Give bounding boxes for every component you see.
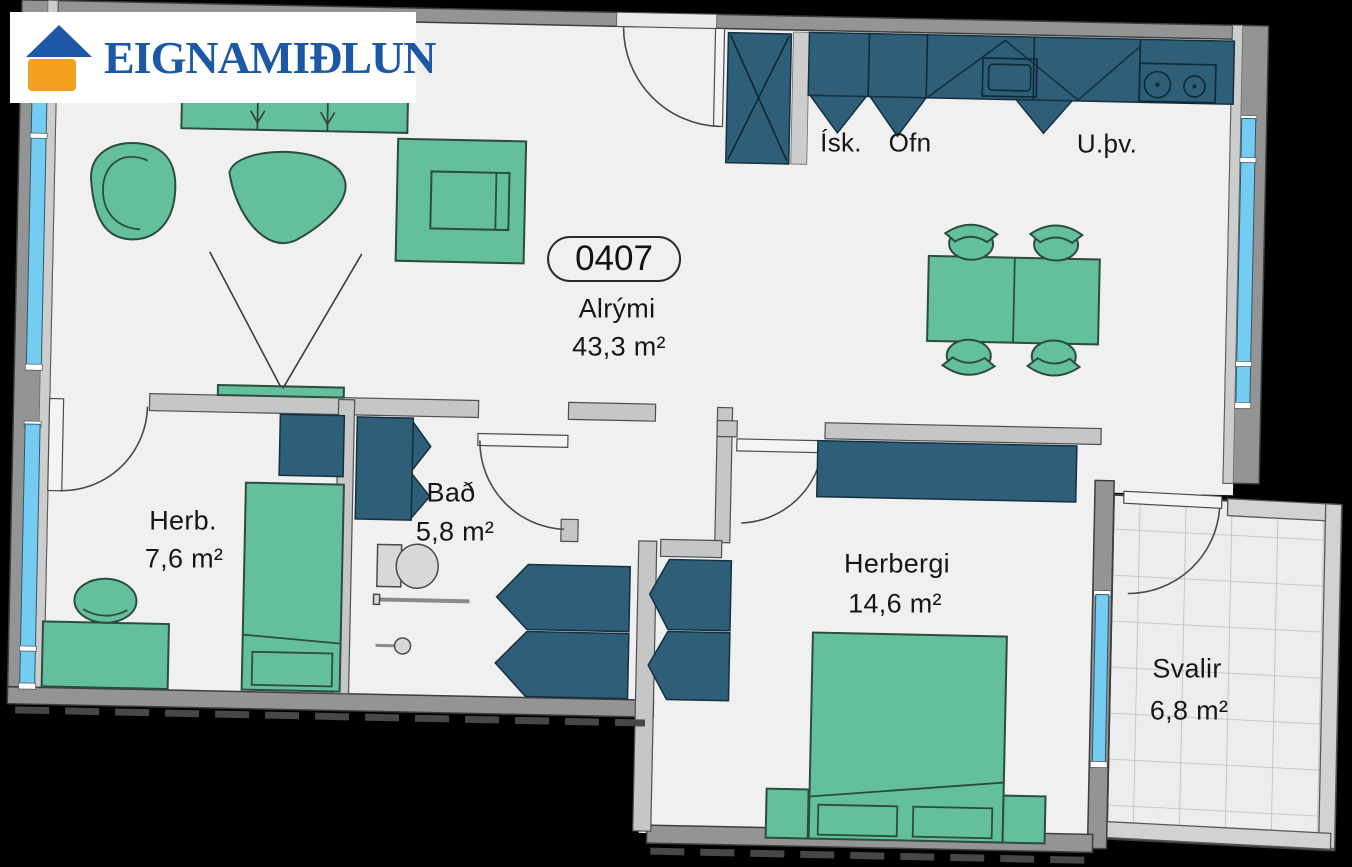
bath-door-leaf: [478, 433, 568, 447]
house-body-icon: [28, 59, 76, 91]
vanity: [355, 417, 413, 520]
room-label-alrymi: Alrými: [579, 294, 656, 325]
wall-living-divider-b: [568, 402, 655, 421]
wall-stub-bedroom: [660, 539, 721, 557]
kitchen-counter: [808, 32, 1234, 104]
house-icon: [26, 25, 92, 91]
entrance-opening: [617, 12, 717, 28]
room-area-herb: 7,6 m²: [145, 544, 223, 575]
wall-entry-closet: [791, 32, 810, 164]
agency-name: EIGNAMIÐLUN: [104, 31, 435, 84]
room-area-bad: 5,8 m²: [416, 517, 494, 548]
double-bed: [809, 633, 1007, 843]
wall-stub-bath: [561, 519, 578, 541]
nightstand: [766, 789, 809, 839]
agency-logo: EIGNAMIÐLUN: [10, 12, 416, 103]
room-label-herb: Herb.: [149, 506, 217, 537]
room-label-bad: Bað: [427, 478, 476, 509]
herb-bed: [242, 483, 344, 692]
label-fridge: Ísk.: [820, 128, 862, 159]
room-label-herbergi: Herbergi: [844, 549, 950, 580]
toilet-bowl: [396, 544, 439, 589]
room-label-svalir: Svalir: [1152, 654, 1221, 685]
herb-wardrobe: [279, 414, 344, 476]
wall-bedroom-top-a: [717, 420, 737, 436]
floor-plan-page: { "logo": { "name": "EIGNAMIÐLUN" }, "un…: [0, 0, 1352, 867]
floor-plan-drawing: [0, 0, 1352, 867]
bedroom-door-leaf: [737, 439, 825, 453]
desk: [42, 621, 169, 689]
label-oven: Ofn: [889, 128, 932, 159]
towel-bar: [377, 599, 470, 601]
boundary-dashes: [650, 851, 1100, 860]
unit-number-badge: 0407: [547, 236, 681, 282]
label-dishwasher: U.þv.: [1077, 129, 1137, 160]
house-roof-icon: [26, 25, 92, 57]
bedroom-wardrobe: [817, 441, 1077, 502]
room-area-svalir: 6,8 m²: [1150, 696, 1228, 727]
nightstand: [1003, 796, 1046, 844]
herb-door-leaf: [48, 398, 64, 490]
room-area-herbergi: 14,6 m²: [848, 589, 942, 620]
entrance-door-leaf: [714, 28, 725, 126]
shower-drain: [394, 638, 410, 654]
room-area-alrymi: 43,3 m²: [572, 332, 666, 363]
